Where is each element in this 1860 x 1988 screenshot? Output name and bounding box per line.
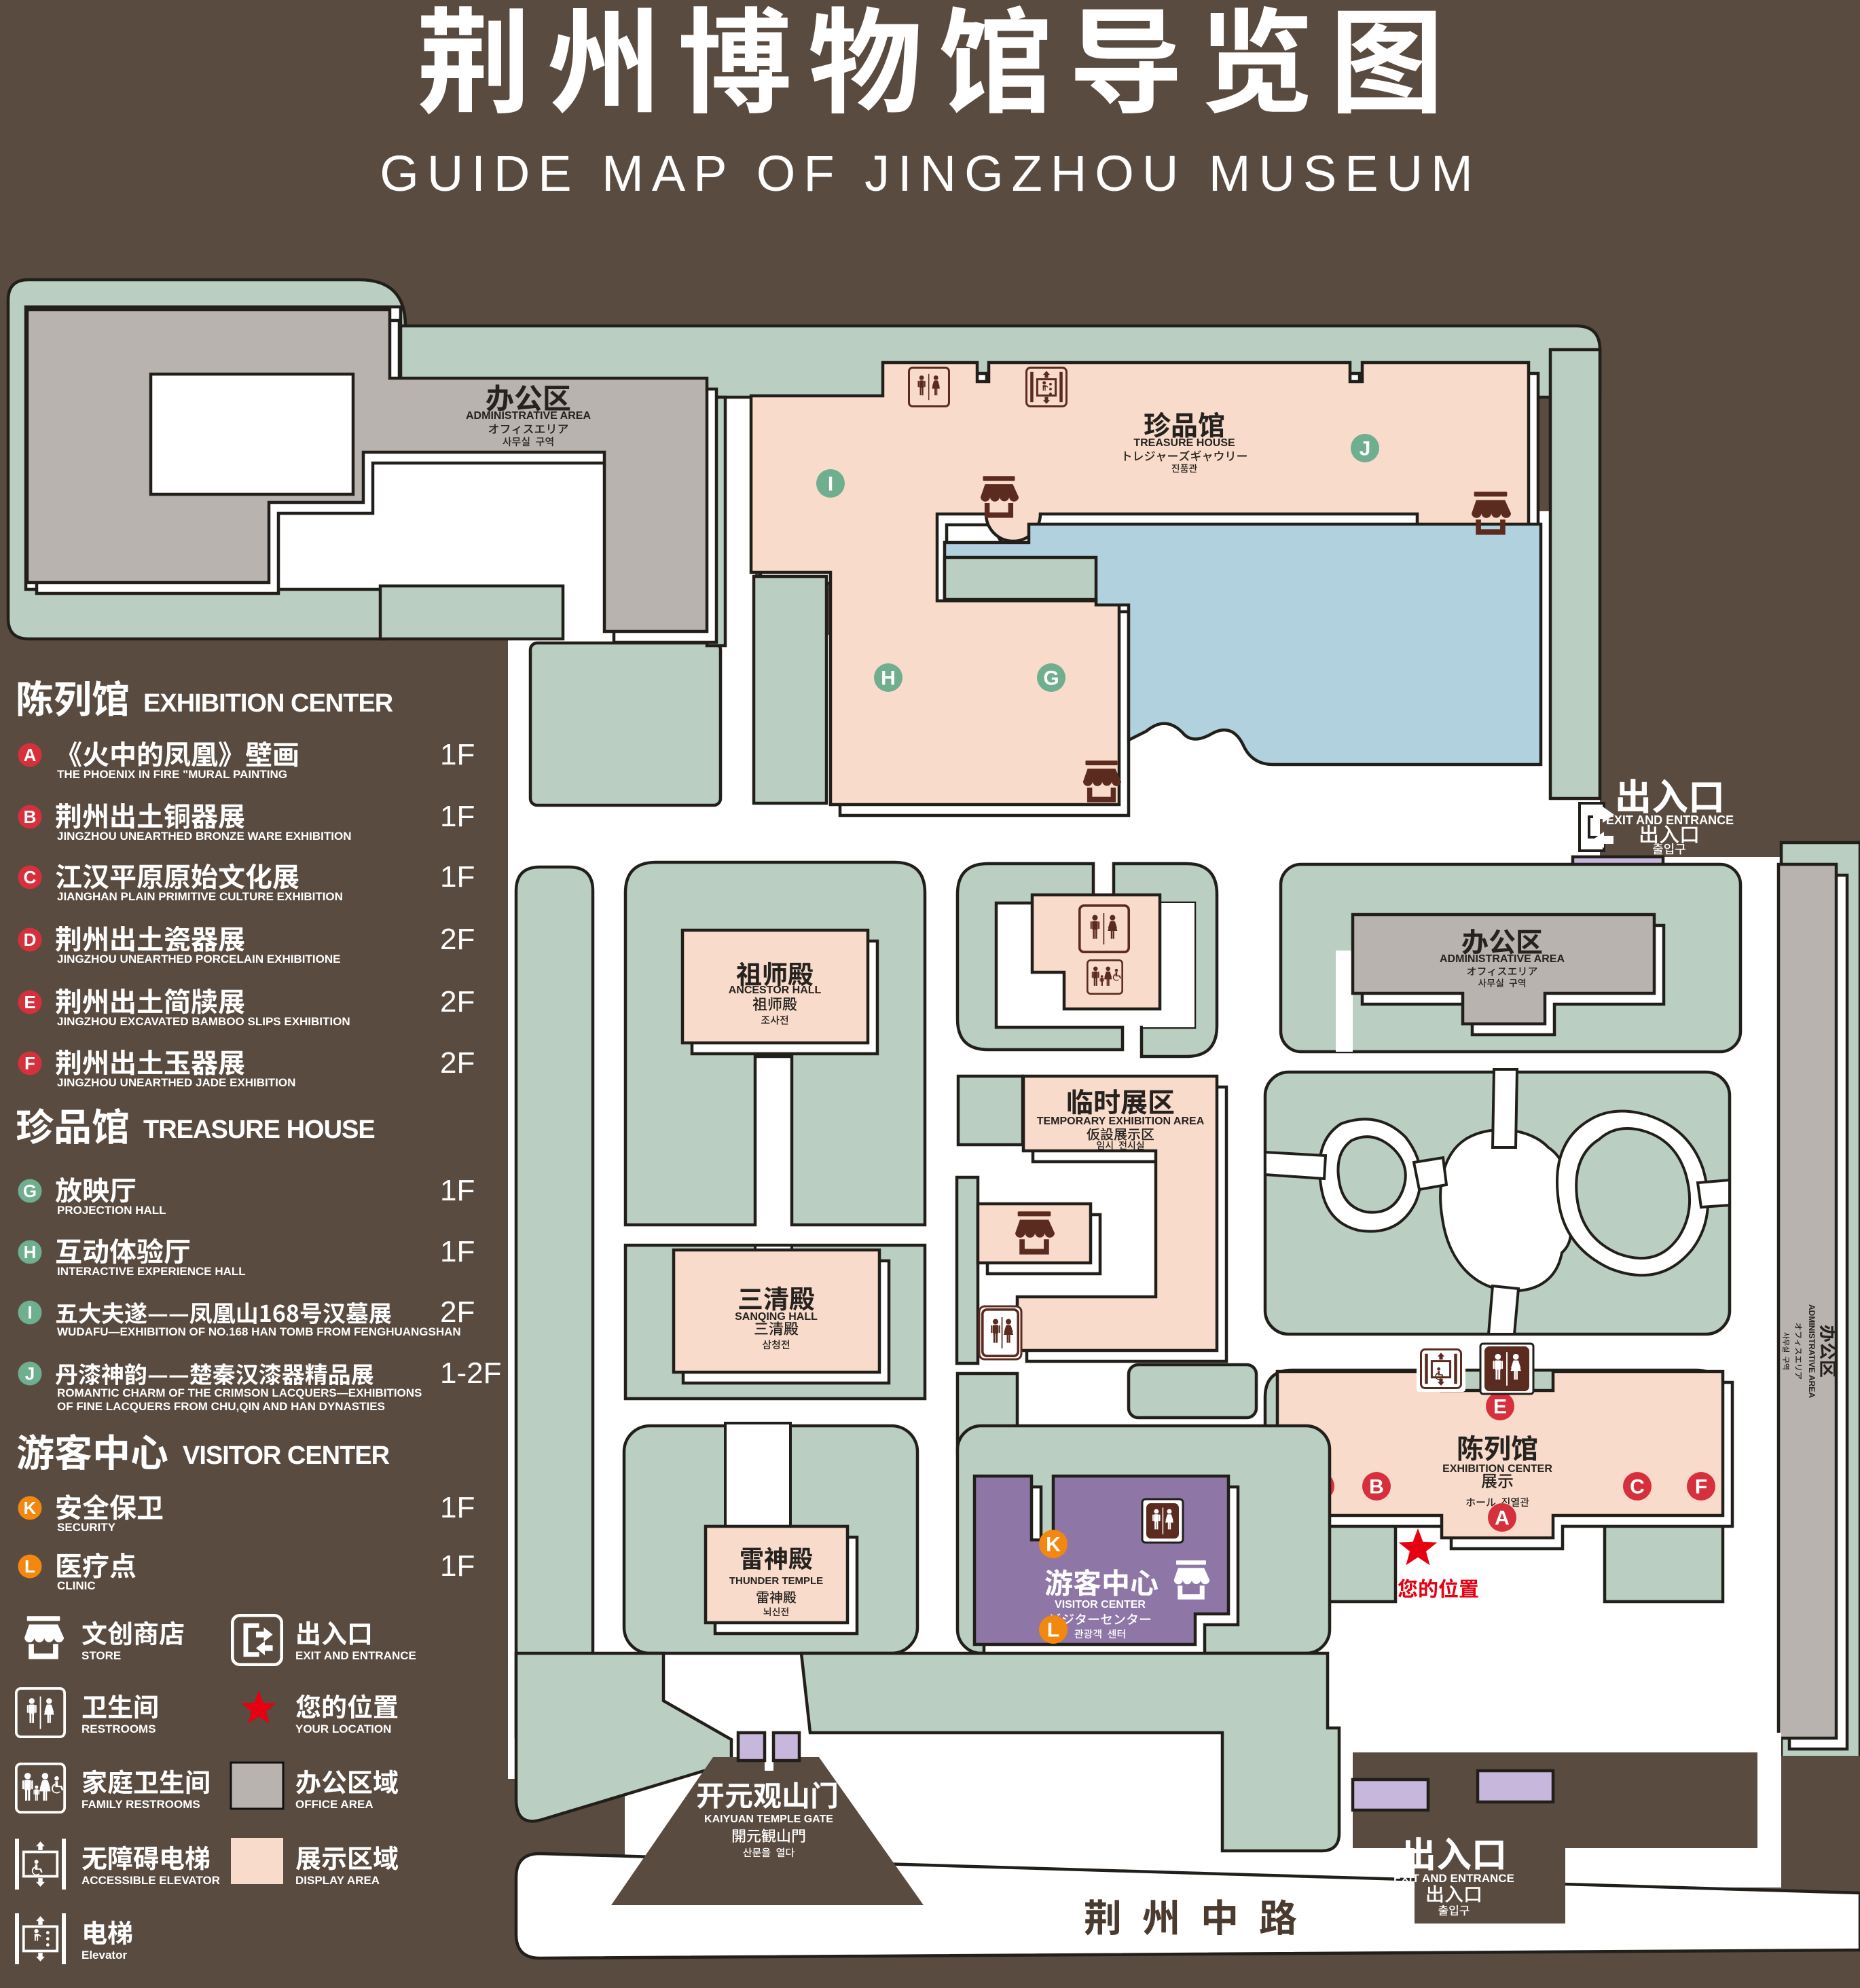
svg-text:RESTROOMS: RESTROOMS [81,1723,156,1735]
svg-text:CLINIC: CLINIC [57,1579,96,1592]
svg-text:H: H [881,667,896,690]
svg-text:THUNDER TEMPLE: THUNDER TEMPLE [729,1575,823,1587]
svg-text:DISPLAY AREA: DISPLAY AREA [295,1874,380,1887]
svg-text:ADMINISTRATIVE AREA: ADMINISTRATIVE AREA [466,410,591,422]
svg-text:L: L [1047,1619,1059,1642]
svg-text:INTERACTIVE EXPERIENCE HALL: INTERACTIVE EXPERIENCE HALL [57,1265,246,1278]
svg-text:ROMANTIC CHARM OF THE CRIMSON: ROMANTIC CHARM OF THE CRIMSON LACQUERS—E… [57,1386,422,1399]
svg-text:JINGZHOU UNEARTHED JADE EXHIBI: JINGZHOU UNEARTHED JADE EXHIBITION [57,1076,295,1089]
svg-text:TREASURE HOUSE: TREASURE HOUSE [1133,437,1235,449]
svg-text:G: G [1043,667,1059,690]
svg-text:2F: 2F [440,1295,475,1329]
svg-text:OFFICE AREA: OFFICE AREA [295,1798,373,1811]
svg-text:JINGZHOU EXCAVATED BAMBOO SLIP: JINGZHOU EXCAVATED BAMBOO SLIPS EXHIBITI… [57,1015,350,1028]
svg-text:EXHIBITION CENTER: EXHIBITION CENTER [143,689,393,718]
svg-text:2F: 2F [440,1046,475,1080]
svg-text:F: F [24,1053,35,1073]
svg-text:Elevator: Elevator [81,1949,127,1962]
svg-text:E: E [24,992,35,1012]
svg-text:2F: 2F [440,985,475,1018]
svg-text:D: D [24,929,37,950]
svg-text:K: K [24,1498,37,1518]
svg-text:ANCESTOR HALL: ANCESTOR HALL [729,984,822,996]
svg-text:C: C [1630,1476,1645,1498]
svg-text:C: C [24,867,37,887]
svg-text:PROJECTION HALL: PROJECTION HALL [57,1204,166,1217]
svg-text:1F: 1F [440,800,475,833]
svg-text:JINGZHOU UNEARTHED BRONZE WARE: JINGZHOU UNEARTHED BRONZE WARE EXHIBITIO… [57,830,352,843]
svg-text:STORE: STORE [81,1649,121,1662]
svg-text:G: G [23,1181,37,1201]
svg-text:YOUR LOCATION: YOUR LOCATION [295,1723,391,1735]
svg-text:F: F [1695,1476,1707,1498]
svg-text:JINGZHOU UNEARTHED PORCELAIN E: JINGZHOU UNEARTHED PORCELAIN EXHIBITIONE [57,953,340,965]
svg-text:J: J [25,1363,35,1384]
svg-text:JIANGHAN PLAIN PRIMITIVE CULTU: JIANGHAN PLAIN PRIMITIVE CULTURE EXHIBIT… [57,890,343,903]
svg-text:VISITOR CENTER: VISITOR CENTER [1055,1599,1146,1610]
svg-text:ADMINISTRATIVE AREA: ADMINISTRATIVE AREA [1807,1304,1817,1398]
svg-text:B: B [1369,1476,1384,1498]
svg-text:E: E [1493,1396,1507,1418]
svg-text:ADMINISTRATIVE AREA: ADMINISTRATIVE AREA [1440,953,1565,965]
svg-text:ACCESSIBLE ELEVATOR: ACCESSIBLE ELEVATOR [81,1874,220,1887]
svg-text:J: J [1360,438,1371,460]
svg-text:OF FINE LACQUERS FROM CHU,QIN: OF FINE LACQUERS FROM CHU,QIN AND HAN DY… [57,1400,385,1413]
svg-text:THE PHOENIX IN FIRE "MURAL PAI: THE PHOENIX IN FIRE "MURAL PAINTING [57,768,287,781]
svg-text:GUIDE MAP OF JINGZHOU MUSEUM: GUIDE MAP OF JINGZHOU MUSEUM [380,145,1480,202]
svg-text:SECURITY: SECURITY [57,1521,116,1534]
svg-text:B: B [24,807,37,827]
svg-text:TREASURE HOUSE: TREASURE HOUSE [143,1116,375,1144]
svg-text:1F: 1F [440,1491,475,1524]
svg-text:EXIT AND ENTRANCE: EXIT AND ENTRANCE [295,1649,416,1662]
svg-text:EXIT AND ENTRANCE: EXIT AND ENTRANCE [1606,813,1734,827]
svg-text:1F: 1F [440,1174,475,1207]
svg-text:VISITOR CENTER: VISITOR CENTER [183,1441,390,1470]
svg-text:EXIT AND ENTRANCE: EXIT AND ENTRANCE [1393,1872,1514,1885]
svg-text:L: L [24,1556,35,1577]
svg-text:1-2F: 1-2F [440,1357,501,1390]
svg-text:1F: 1F [440,1235,475,1268]
svg-text:1F: 1F [440,1549,475,1583]
svg-text:WUDAFU—EXHIBITION OF NO.168 HA: WUDAFU—EXHIBITION OF NO.168 HAN TOMB FRO… [57,1325,461,1338]
svg-text:K: K [1046,1534,1061,1556]
svg-text:1F: 1F [440,738,475,771]
svg-text:I: I [27,1302,32,1323]
svg-text:KAIYUAN TEMPLE GATE: KAIYUAN TEMPLE GATE [704,1814,833,1825]
svg-text:H: H [24,1242,37,1262]
svg-text:SANQING HALL: SANQING HALL [735,1311,818,1323]
svg-text:EXHIBITION CENTER: EXHIBITION CENTER [1442,1463,1552,1475]
svg-text:A: A [1495,1507,1510,1530]
svg-text:FAMILY RESTROOMS: FAMILY RESTROOMS [81,1798,200,1811]
svg-text:I: I [828,473,833,496]
svg-text:1F: 1F [440,860,475,894]
svg-text:TEMPORARY EXHIBITION AREA: TEMPORARY EXHIBITION AREA [1037,1116,1205,1127]
svg-text:2F: 2F [440,923,475,956]
svg-text:A: A [24,745,37,765]
